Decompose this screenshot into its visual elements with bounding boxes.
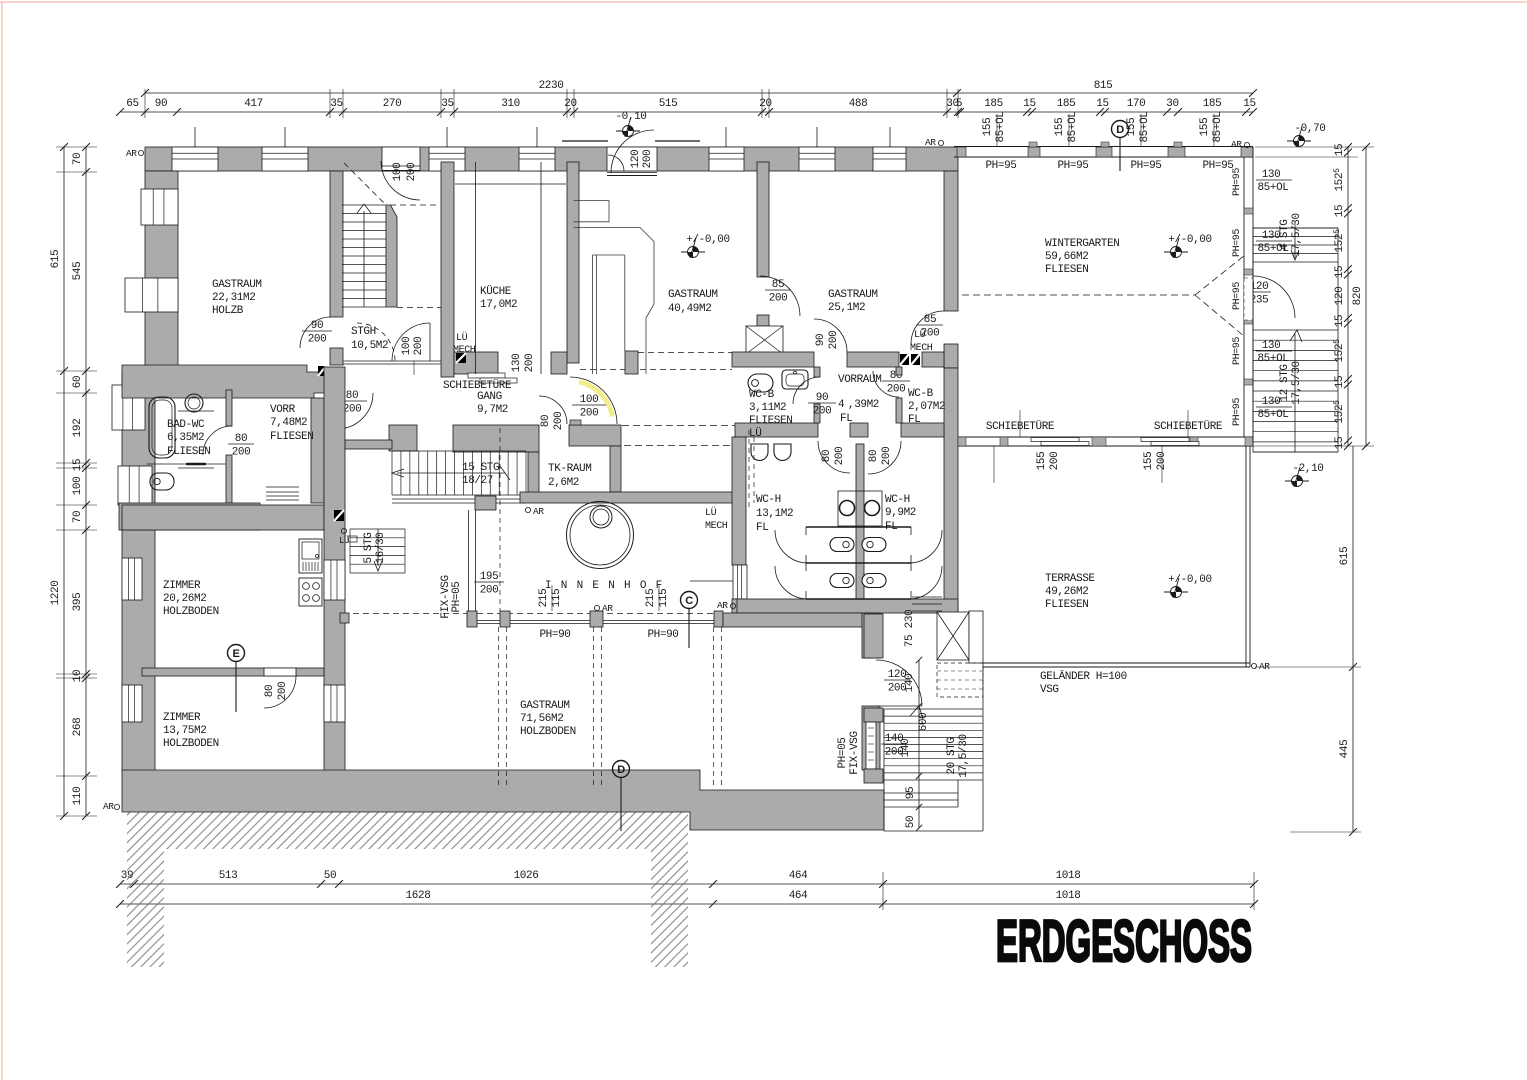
svg-text:FLIESEN: FLIESEN xyxy=(1045,264,1088,276)
svg-text:155: 155 xyxy=(1036,452,1048,471)
svg-text:17,5/30: 17,5/30 xyxy=(1291,213,1303,256)
svg-text:AR: AR xyxy=(126,148,137,159)
svg-text:PH=95: PH=95 xyxy=(1232,337,1243,365)
svg-text:65: 65 xyxy=(126,98,138,110)
svg-text:200: 200 xyxy=(813,406,832,418)
svg-text:16/30: 16/30 xyxy=(375,532,387,563)
svg-text:SCHIEBETÜRE: SCHIEBETÜRE xyxy=(986,420,1055,433)
svg-text:270: 270 xyxy=(383,98,402,110)
svg-text:FLIESEN: FLIESEN xyxy=(749,415,792,427)
svg-text:80: 80 xyxy=(821,450,833,462)
svg-text:140: 140 xyxy=(904,674,916,693)
svg-text:545: 545 xyxy=(72,262,84,281)
svg-text:10,5M2: 10,5M2 xyxy=(351,340,388,352)
svg-text:MECH: MECH xyxy=(910,343,933,354)
svg-text:90: 90 xyxy=(311,320,323,332)
svg-text:49,26M2: 49,26M2 xyxy=(1045,586,1088,598)
svg-text:2230: 2230 xyxy=(539,80,564,92)
svg-text:SCHIEBETÜRE: SCHIEBETÜRE xyxy=(443,379,512,392)
svg-text:PH=05: PH=05 xyxy=(451,581,463,612)
svg-text:GASTRAUM: GASTRAUM xyxy=(212,279,262,291)
svg-text:FL: FL xyxy=(908,414,920,426)
svg-text:200: 200 xyxy=(769,293,788,305)
svg-text:AR: AR xyxy=(1259,661,1270,672)
svg-text:FL: FL xyxy=(840,413,852,425)
svg-text:PH=95: PH=95 xyxy=(1202,160,1233,172)
svg-text:15: 15 xyxy=(1334,205,1346,217)
svg-text:20: 20 xyxy=(564,98,576,110)
svg-text:PH=90: PH=90 xyxy=(539,629,570,641)
svg-text:71,56M2: 71,56M2 xyxy=(520,713,563,725)
svg-text:15: 15 xyxy=(1023,98,1035,110)
svg-text:PH=90: PH=90 xyxy=(647,629,678,641)
svg-text:+/-0,00: +/-0,00 xyxy=(1168,234,1211,246)
svg-text:200: 200 xyxy=(834,447,846,466)
svg-text:215: 215 xyxy=(645,589,657,608)
svg-text:155: 155 xyxy=(1199,118,1211,137)
svg-text:488: 488 xyxy=(849,98,868,110)
svg-text:85: 85 xyxy=(924,314,936,326)
svg-text:HOLZBODEN: HOLZBODEN xyxy=(520,726,576,738)
svg-text:110: 110 xyxy=(72,787,84,806)
svg-text:60: 60 xyxy=(72,376,84,388)
svg-text:80: 80 xyxy=(235,433,247,445)
svg-text:464: 464 xyxy=(789,870,808,882)
svg-text:80: 80 xyxy=(346,390,358,402)
svg-text:85+OL: 85+OL xyxy=(1257,409,1288,421)
svg-text:LÜ: LÜ xyxy=(749,427,761,440)
svg-text:BAD-WC: BAD-WC xyxy=(167,419,205,431)
svg-text:GASTRAUM: GASTRAUM xyxy=(668,289,718,301)
svg-text:PH=95: PH=95 xyxy=(1232,229,1243,257)
svg-text:SCHIEBETÜRE: SCHIEBETÜRE xyxy=(1154,420,1223,433)
svg-text:TK-RAUM: TK-RAUM xyxy=(548,463,591,475)
svg-text:GANG: GANG xyxy=(477,391,502,403)
svg-text:820: 820 xyxy=(1352,287,1364,306)
svg-text:815: 815 xyxy=(1094,80,1113,92)
svg-text:445: 445 xyxy=(1339,740,1351,759)
svg-text:PH=95: PH=95 xyxy=(985,160,1016,172)
svg-text:LÜ: LÜ xyxy=(339,535,349,546)
svg-text:80: 80 xyxy=(868,450,880,462)
svg-text:D: D xyxy=(617,764,625,776)
svg-text:STGH: STGH xyxy=(351,326,376,338)
svg-text:130: 130 xyxy=(511,354,523,373)
svg-text:VSG: VSG xyxy=(1040,684,1059,696)
svg-text:90: 90 xyxy=(815,334,827,346)
svg-text:FL: FL xyxy=(756,522,768,534)
svg-text:464: 464 xyxy=(789,890,808,902)
svg-text:85+OL: 85+OL xyxy=(1257,353,1288,365)
svg-text:C: C xyxy=(685,595,693,607)
svg-text:AR: AR xyxy=(103,801,114,812)
svg-text:395: 395 xyxy=(72,593,84,612)
svg-text:4 STG: 4 STG xyxy=(1279,219,1291,250)
svg-text:200: 200 xyxy=(1049,452,1061,471)
svg-text:20,26M2: 20,26M2 xyxy=(163,593,206,605)
svg-text:10: 10 xyxy=(72,670,84,682)
svg-text:1220: 1220 xyxy=(50,581,62,606)
svg-text:59,66M2: 59,66M2 xyxy=(1045,251,1088,263)
svg-text:25,1M2: 25,1M2 xyxy=(828,302,865,314)
svg-text:ZIMMER: ZIMMER xyxy=(163,580,201,592)
svg-text:15: 15 xyxy=(1334,315,1346,327)
svg-text:WC-H: WC-H xyxy=(885,494,910,506)
svg-text:+/-0,00: +/-0,00 xyxy=(686,234,729,246)
svg-text:100: 100 xyxy=(392,163,404,182)
svg-text:155: 155 xyxy=(1143,452,1155,471)
svg-text:LÜ: LÜ xyxy=(914,328,926,341)
svg-text:5: 5 xyxy=(956,98,962,110)
svg-text:1628: 1628 xyxy=(406,890,431,902)
svg-text:50: 50 xyxy=(324,870,336,882)
svg-text:140: 140 xyxy=(900,739,912,758)
svg-text:195: 195 xyxy=(480,571,499,583)
svg-text:15: 15 xyxy=(1334,144,1346,156)
svg-text:200: 200 xyxy=(413,337,425,356)
svg-text:17,5/30: 17,5/30 xyxy=(958,734,970,777)
svg-text:PH=95: PH=95 xyxy=(1232,398,1243,426)
svg-text:130: 130 xyxy=(1262,396,1281,408)
svg-text:85: 85 xyxy=(772,279,784,291)
svg-text:AR: AR xyxy=(717,600,728,611)
svg-text:13,1M2: 13,1M2 xyxy=(756,508,793,520)
svg-text:FIX-VSG: FIX-VSG xyxy=(849,731,861,774)
svg-text:155: 155 xyxy=(1054,118,1066,137)
svg-text:90: 90 xyxy=(816,392,828,404)
svg-text:120: 120 xyxy=(1334,287,1346,306)
svg-text:FLIESEN: FLIESEN xyxy=(1045,599,1088,611)
svg-text:230: 230 xyxy=(904,610,916,629)
svg-text:1018: 1018 xyxy=(1056,890,1081,902)
svg-text:200: 200 xyxy=(828,331,840,350)
svg-text:2,6M2: 2,6M2 xyxy=(548,477,579,489)
svg-text:15: 15 xyxy=(1243,98,1255,110)
svg-text:70: 70 xyxy=(72,511,84,523)
svg-text:12 STG: 12 STG xyxy=(1279,364,1291,401)
svg-text:615: 615 xyxy=(1339,547,1351,566)
svg-text:17,0M2: 17,0M2 xyxy=(480,299,517,311)
svg-text:ZIMMER: ZIMMER xyxy=(163,712,201,724)
svg-text:130: 130 xyxy=(1262,169,1281,181)
svg-text:PH=95: PH=95 xyxy=(1232,282,1243,310)
svg-text:18/27: 18/27 xyxy=(462,475,493,487)
svg-text:192: 192 xyxy=(72,419,84,438)
svg-text:PH=95: PH=95 xyxy=(1232,168,1243,196)
svg-text:HOLZBODEN: HOLZBODEN xyxy=(163,738,219,750)
svg-text:515: 515 xyxy=(659,98,678,110)
svg-text:120: 120 xyxy=(630,150,642,169)
svg-text:615: 615 xyxy=(50,250,62,269)
svg-text:155: 155 xyxy=(982,118,994,137)
svg-text:3,11M2: 3,11M2 xyxy=(749,402,786,414)
svg-text:-0,70: -0,70 xyxy=(1294,123,1325,135)
svg-text:185: 185 xyxy=(984,98,1003,110)
svg-text:170: 170 xyxy=(1127,98,1146,110)
svg-text:30: 30 xyxy=(1166,98,1178,110)
svg-text:LÜ: LÜ xyxy=(705,506,717,519)
svg-text:9,9M2: 9,9M2 xyxy=(885,507,916,519)
svg-text:200: 200 xyxy=(887,384,906,396)
svg-text:PH=95: PH=95 xyxy=(1130,160,1161,172)
svg-text:WINTERGARTEN: WINTERGARTEN xyxy=(1045,238,1119,250)
svg-text:185: 185 xyxy=(1203,98,1222,110)
svg-text:WC-H: WC-H xyxy=(756,494,781,506)
svg-text:90: 90 xyxy=(155,98,167,110)
svg-text:35: 35 xyxy=(330,98,342,110)
svg-text:513: 513 xyxy=(219,870,238,882)
svg-text:HOLZB: HOLZB xyxy=(212,305,244,317)
svg-text:AR: AR xyxy=(602,603,613,614)
svg-text:FL: FL xyxy=(885,521,897,533)
svg-text:200: 200 xyxy=(642,150,654,169)
svg-text:70: 70 xyxy=(72,153,84,165)
svg-text:FLIESEN: FLIESEN xyxy=(270,431,313,443)
svg-text:AR: AR xyxy=(533,506,544,517)
svg-text:KÜCHE: KÜCHE xyxy=(480,285,512,298)
svg-text:D: D xyxy=(1116,124,1124,136)
svg-text:E: E xyxy=(233,648,240,660)
svg-text:6,35M2: 6,35M2 xyxy=(167,432,204,444)
svg-text:15: 15 xyxy=(72,459,84,471)
svg-text:115: 115 xyxy=(658,589,670,608)
svg-text:-2,10: -2,10 xyxy=(1292,463,1323,475)
svg-text:200: 200 xyxy=(553,412,565,431)
svg-text:85+OL: 85+OL xyxy=(1257,182,1288,194)
svg-text:GASTRAUM: GASTRAUM xyxy=(828,289,878,301)
svg-text:100: 100 xyxy=(401,337,413,356)
svg-text:100: 100 xyxy=(580,394,599,406)
svg-text:35: 35 xyxy=(441,98,453,110)
svg-text:50: 50 xyxy=(905,816,917,828)
svg-text:200: 200 xyxy=(580,408,599,420)
svg-text:22,31M2: 22,31M2 xyxy=(212,292,255,304)
svg-text:13,75M2: 13,75M2 xyxy=(163,725,206,737)
svg-text:-0,10: -0,10 xyxy=(615,111,646,123)
svg-text:80: 80 xyxy=(264,685,276,697)
svg-text:4: 4 xyxy=(838,399,845,411)
svg-text:+/-0,00: +/-0,00 xyxy=(1168,574,1211,586)
svg-text:ERDGESCHOSS: ERDGESCHOSS xyxy=(996,909,1252,974)
svg-text:15 STG: 15 STG xyxy=(462,462,499,474)
svg-text:200: 200 xyxy=(480,585,499,597)
svg-text:200: 200 xyxy=(277,682,289,701)
svg-text:1018: 1018 xyxy=(1056,870,1081,882)
svg-text:95: 95 xyxy=(905,787,917,799)
svg-text:FLIESEN: FLIESEN xyxy=(167,446,210,458)
svg-text:LÜ: LÜ xyxy=(456,331,468,344)
svg-text:WC-B: WC-B xyxy=(908,388,934,400)
svg-text:2,07M2: 2,07M2 xyxy=(908,401,945,413)
svg-text:200: 200 xyxy=(308,334,327,346)
svg-text:TERRASSE: TERRASSE xyxy=(1045,573,1095,585)
svg-text:GASTRAUM: GASTRAUM xyxy=(520,700,570,712)
svg-text:310: 310 xyxy=(501,98,520,110)
svg-text:9,7M2: 9,7M2 xyxy=(477,404,508,416)
svg-text:200: 200 xyxy=(343,404,362,416)
svg-text:AR: AR xyxy=(925,137,936,148)
svg-text:80: 80 xyxy=(540,415,552,427)
svg-text:115: 115 xyxy=(551,589,563,608)
svg-text:185: 185 xyxy=(1057,98,1076,110)
svg-text:15: 15 xyxy=(1334,437,1346,449)
svg-text:600: 600 xyxy=(918,713,930,732)
svg-text:PH=05: PH=05 xyxy=(837,737,849,768)
svg-text:200: 200 xyxy=(232,447,251,459)
svg-text:200: 200 xyxy=(406,163,418,182)
svg-text:200: 200 xyxy=(881,447,893,466)
svg-text:20: 20 xyxy=(759,98,771,110)
svg-text:17,5/30: 17,5/30 xyxy=(1291,361,1303,404)
svg-text:200: 200 xyxy=(524,354,536,373)
svg-text:,39M2: ,39M2 xyxy=(848,399,879,411)
svg-text:100: 100 xyxy=(72,477,84,496)
svg-text:268: 268 xyxy=(72,718,84,737)
svg-text:WC-B: WC-B xyxy=(749,389,775,401)
svg-text:7,48M2: 7,48M2 xyxy=(270,417,307,429)
svg-text:VORR: VORR xyxy=(270,404,296,416)
svg-text:20 STG: 20 STG xyxy=(946,737,958,774)
svg-text:1026: 1026 xyxy=(514,870,539,882)
svg-text:15: 15 xyxy=(1096,98,1108,110)
svg-text:15: 15 xyxy=(1334,376,1346,388)
svg-text:75: 75 xyxy=(904,635,916,647)
svg-text:40,49M2: 40,49M2 xyxy=(668,303,711,315)
svg-text:PH=95: PH=95 xyxy=(1057,160,1088,172)
svg-text:HOLZBODEN: HOLZBODEN xyxy=(163,606,219,618)
svg-text:130: 130 xyxy=(1262,230,1281,242)
svg-text:AR: AR xyxy=(1231,139,1242,150)
svg-text:15: 15 xyxy=(1334,266,1346,278)
svg-text:GELÄNDER H=100: GELÄNDER H=100 xyxy=(1040,670,1127,683)
svg-text:215: 215 xyxy=(538,589,550,608)
svg-text:417: 417 xyxy=(244,98,263,110)
svg-text:5 STG: 5 STG xyxy=(363,532,375,563)
svg-text:MECH: MECH xyxy=(705,521,728,532)
